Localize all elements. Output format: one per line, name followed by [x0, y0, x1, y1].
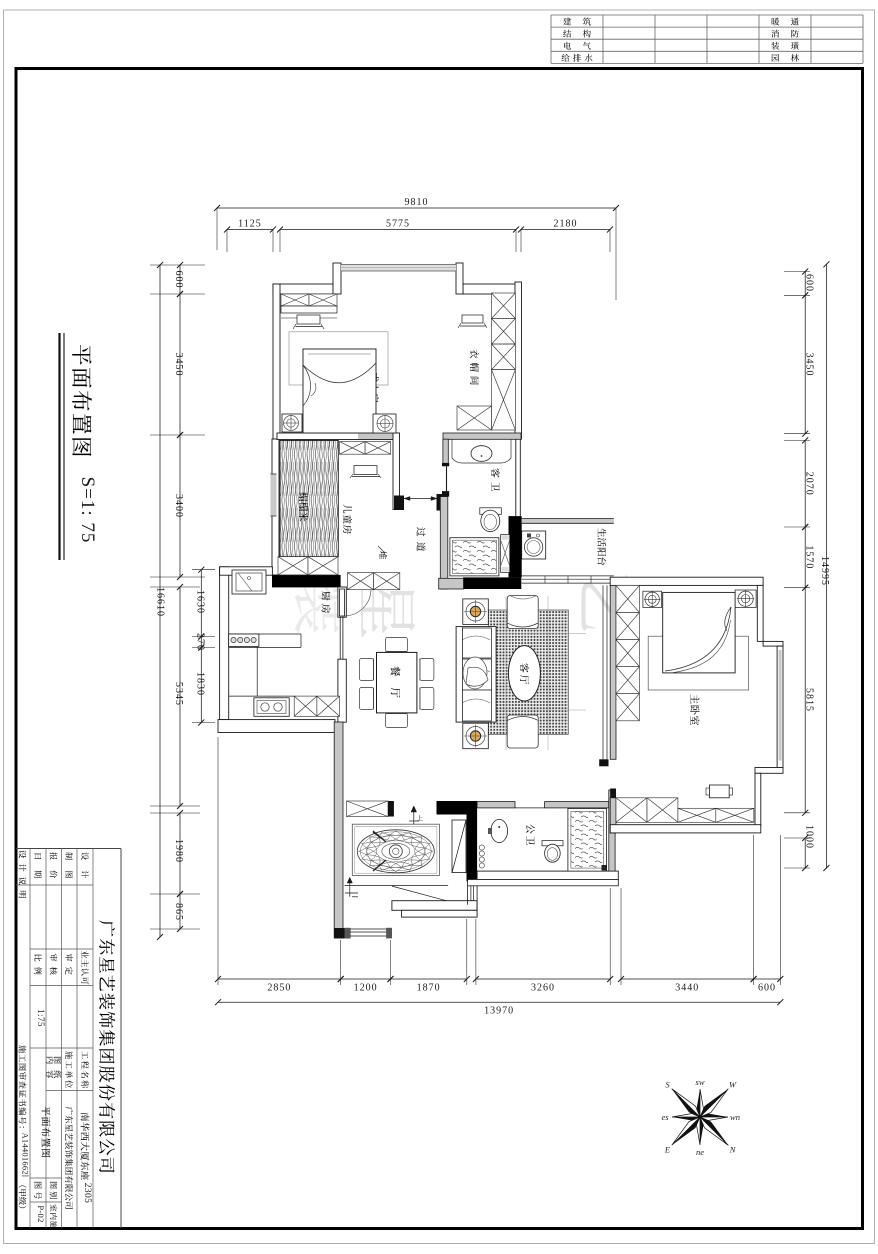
svg-text:1000: 1000	[804, 825, 815, 849]
svg-text:1200: 1200	[354, 983, 378, 994]
svg-text:1980: 1980	[173, 839, 184, 863]
svg-text:wn: wn	[730, 1112, 740, 1122]
svg-text:A14401662l: A14401662l	[21, 1133, 30, 1178]
svg-text:1630: 1630	[195, 590, 206, 614]
svg-text:N: N	[729, 1145, 737, 1155]
svg-text:sw: sw	[696, 1077, 705, 1087]
svg-text:3450: 3450	[173, 353, 184, 377]
svg-text:1870: 1870	[417, 983, 441, 994]
svg-text:16610: 16610	[155, 587, 166, 617]
svg-text:1830: 1830	[195, 672, 206, 696]
svg-text:1125: 1125	[238, 219, 262, 230]
svg-text:W: W	[729, 1079, 737, 1089]
svg-text:2850: 2850	[267, 983, 291, 994]
svg-text:9810: 9810	[405, 197, 429, 208]
svg-text:1570: 1570	[804, 545, 815, 569]
svg-text:865: 865	[173, 903, 184, 921]
svg-text:5775: 5775	[386, 219, 410, 230]
svg-text:S: S	[665, 1079, 670, 1089]
svg-text:3440: 3440	[675, 983, 699, 994]
svg-text:14995: 14995	[819, 556, 830, 586]
svg-text:ne: ne	[696, 1147, 704, 1157]
svg-text:5345: 5345	[173, 682, 184, 706]
svg-text:2305: 2305	[82, 1183, 92, 1204]
svg-text:es: es	[661, 1112, 669, 1122]
svg-text:3450: 3450	[804, 353, 815, 377]
svg-text:S=1: 75: S=1: 75	[77, 477, 98, 544]
svg-text:600: 600	[173, 271, 184, 289]
svg-text:P-02: P-02	[36, 1205, 46, 1222]
svg-text:600: 600	[758, 983, 776, 994]
svg-text:13970: 13970	[484, 1006, 514, 1017]
svg-text:3400: 3400	[173, 494, 184, 518]
svg-text:E: E	[664, 1145, 671, 1155]
svg-text:600: 600	[804, 274, 815, 292]
svg-text:5815: 5815	[804, 688, 815, 712]
svg-text:2180: 2180	[554, 219, 578, 230]
svg-text:2070: 2070	[804, 472, 815, 496]
svg-text:3260: 3260	[531, 983, 555, 994]
svg-text:1:75: 1:75	[36, 1009, 46, 1027]
